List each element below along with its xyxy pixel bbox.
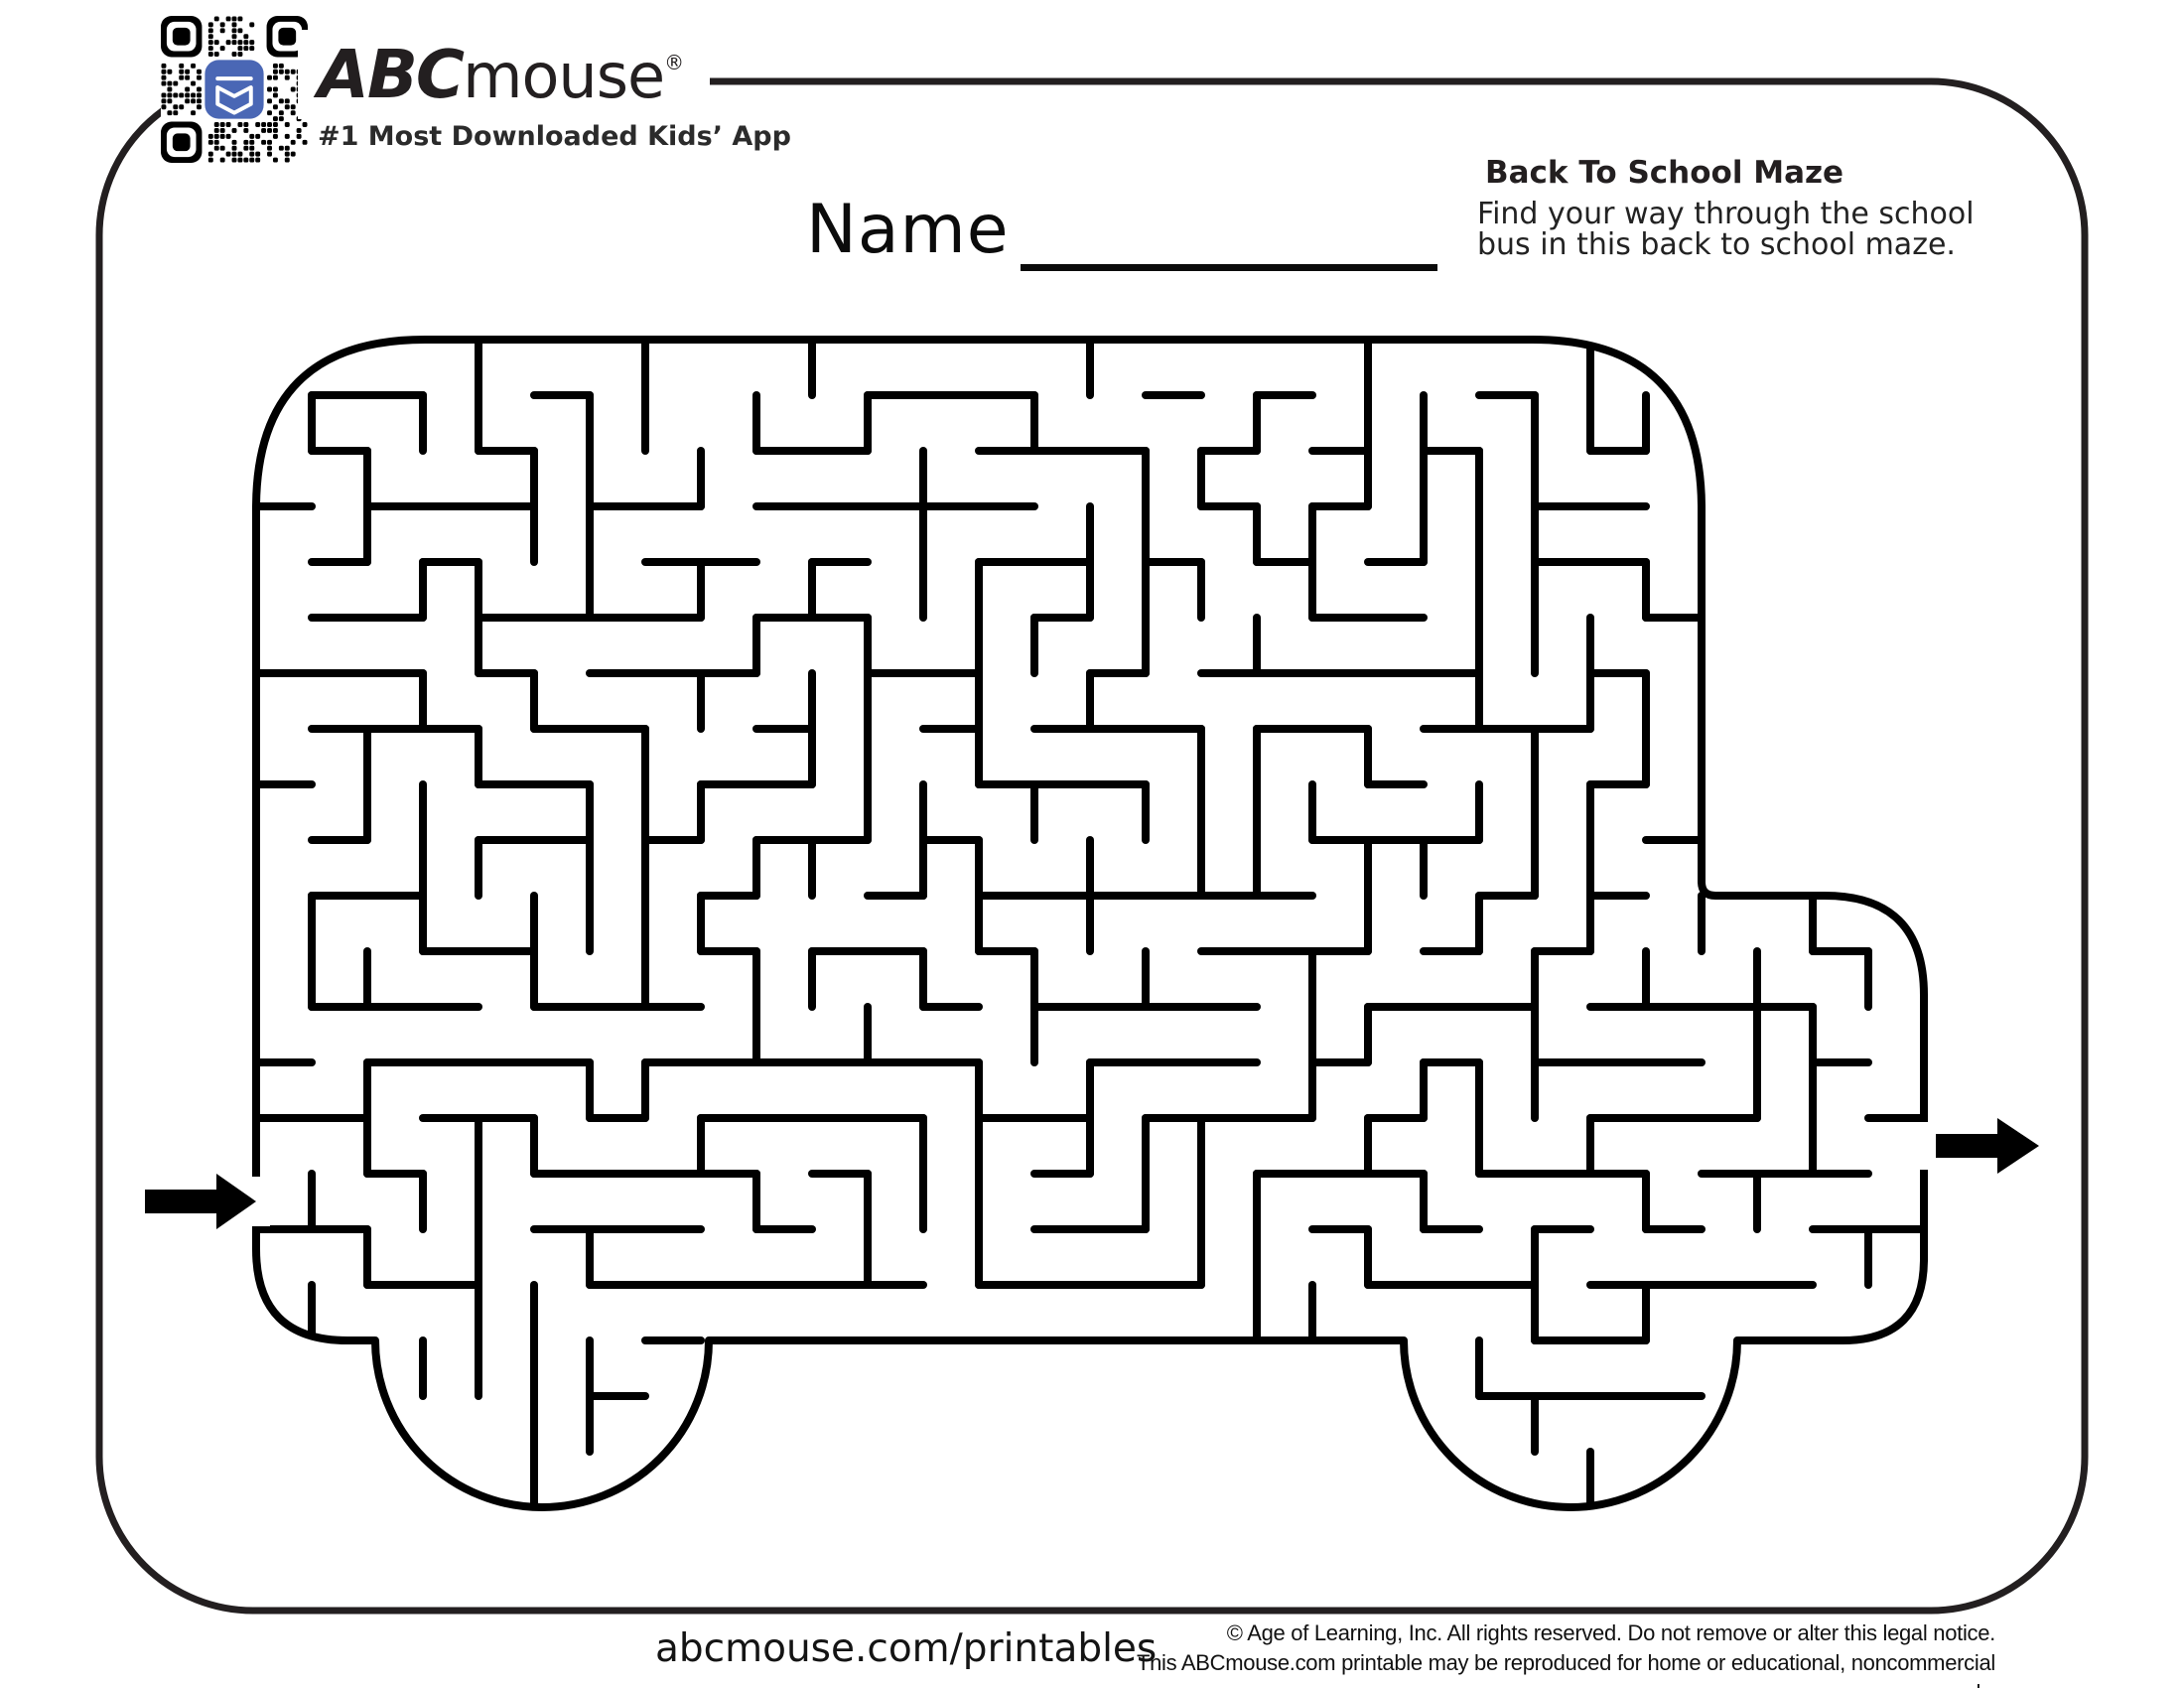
registered-trademark-icon: ®: [664, 51, 684, 74]
legal-line1: © Age of Learning, Inc. All rights reser…: [1062, 1618, 1995, 1648]
maze-entry-arrow-icon: [145, 1174, 256, 1229]
activity-header: Back To School Maze Find your way throug…: [1477, 155, 1993, 260]
logo-tagline: #1 Most Downloaded Kids’ App: [318, 121, 791, 152]
legal-line2: This ABCmouse.com printable may be repro…: [1062, 1648, 1995, 1688]
logo-abc-text: ABC: [318, 36, 463, 113]
abcmouse-logo: ABCmouse®: [298, 30, 710, 119]
printable-worksheet-page: ABCmouse® #1 Most Downloaded Kids’ App N…: [0, 0, 2184, 1688]
maze-exit-arrow-icon: [1936, 1118, 2039, 1174]
name-label: Name: [806, 191, 1010, 269]
legal-notice: © Age of Learning, Inc. All rights reser…: [1062, 1618, 1995, 1688]
activity-title: Back To School Maze: [1485, 155, 1993, 191]
qr-code: [161, 16, 308, 163]
qr-code-pattern: [161, 16, 308, 163]
logo-mouse-text: mouse: [463, 40, 664, 112]
activity-instructions-line1: Find your way through the school: [1477, 199, 1993, 229]
maze-walls: [256, 340, 1924, 1507]
maze-exit-gap: [1910, 1122, 1938, 1170]
name-write-line: [1021, 264, 1437, 271]
activity-instructions-line2: bus in this back to school maze.: [1477, 229, 1993, 260]
